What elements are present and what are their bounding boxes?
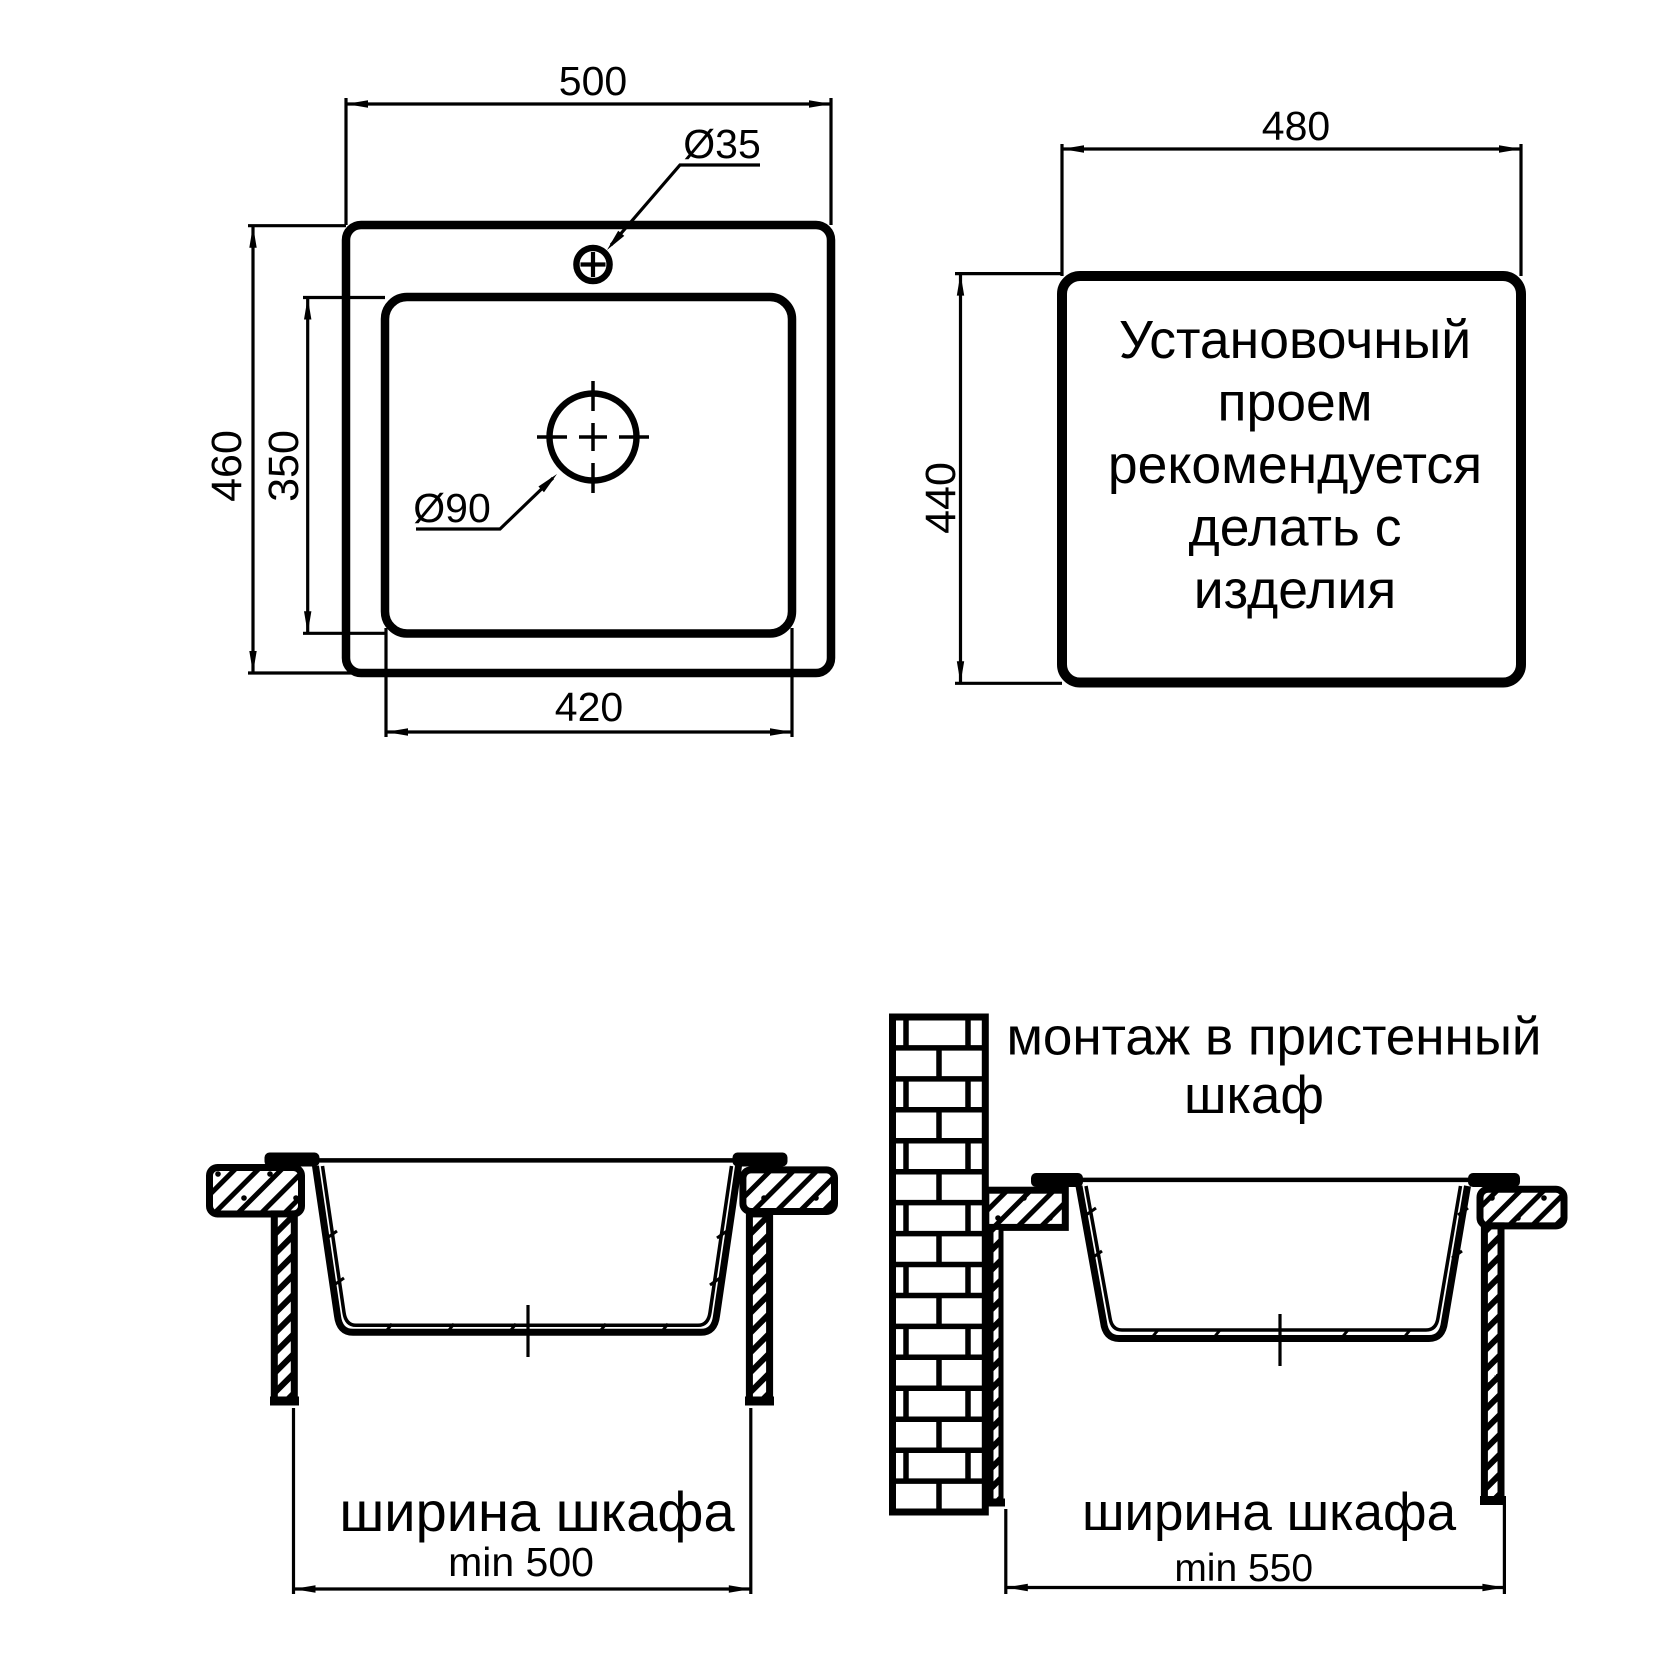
svg-text:Ø90: Ø90 [413,485,491,531]
svg-text:ширина шкафа: ширина шкафа [339,1480,735,1543]
svg-text:монтаж в пристенный: монтаж в пристенный [1006,1008,1541,1067]
svg-text:500: 500 [559,58,627,104]
svg-text:440: 440 [917,462,965,534]
svg-text:480: 480 [1262,103,1330,149]
svg-text:изделия: изделия [1194,561,1397,620]
svg-text:делать с: делать с [1189,499,1402,558]
svg-text:min 550: min 550 [1174,1547,1313,1590]
svg-text:Установочный: Установочный [1119,311,1471,370]
svg-text:420: 420 [555,684,623,730]
svg-text:проем: проем [1217,374,1372,433]
svg-text:350: 350 [260,430,308,502]
svg-text:рекомендуется: рекомендуется [1108,436,1482,495]
svg-text:Ø35: Ø35 [683,121,761,167]
svg-text:шкаф: шкаф [1184,1066,1324,1125]
svg-text:460: 460 [203,430,251,502]
svg-text:ширина шкафа: ширина шкафа [1082,1483,1457,1542]
svg-text:min 500: min 500 [448,1539,594,1585]
